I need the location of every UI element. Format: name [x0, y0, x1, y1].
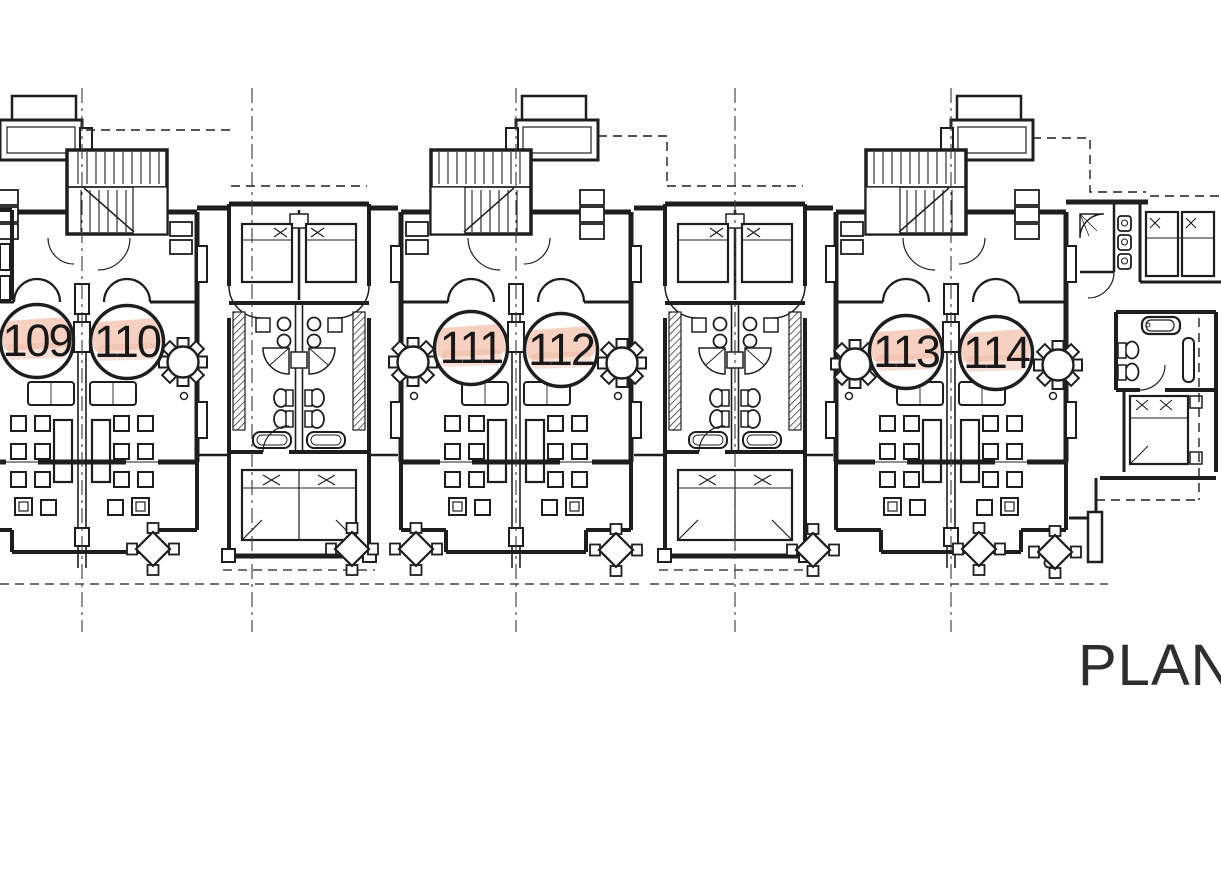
unit-number: 110 — [94, 316, 161, 367]
unit-badge: 111 — [435, 312, 508, 385]
unit-badge: 112 — [525, 314, 598, 387]
unit-number: 111 — [440, 322, 502, 373]
unit-number: 112 — [528, 324, 594, 375]
plan-caption: PLAN — [1078, 632, 1221, 699]
scanned-plan-page: 109 110 111 112 113 — [0, 0, 1221, 877]
plan-linework — [0, 88, 1221, 632]
canopy-dashed-line — [1032, 138, 1146, 192]
unit-number: 109 — [2, 315, 71, 366]
canopy-dashed-line — [598, 136, 667, 186]
unit-badge: 109 — [1, 305, 74, 378]
floor-plan-drawing: 109 110 111 112 113 — [0, 0, 1221, 877]
unit-number: 113 — [873, 326, 940, 377]
unit-badge: 110 — [91, 306, 164, 379]
unit-badge: 113 — [870, 316, 943, 389]
bedroom-wing — [222, 186, 376, 570]
unit-badge: 114 — [960, 317, 1033, 390]
unit-number: 114 — [963, 327, 1030, 378]
